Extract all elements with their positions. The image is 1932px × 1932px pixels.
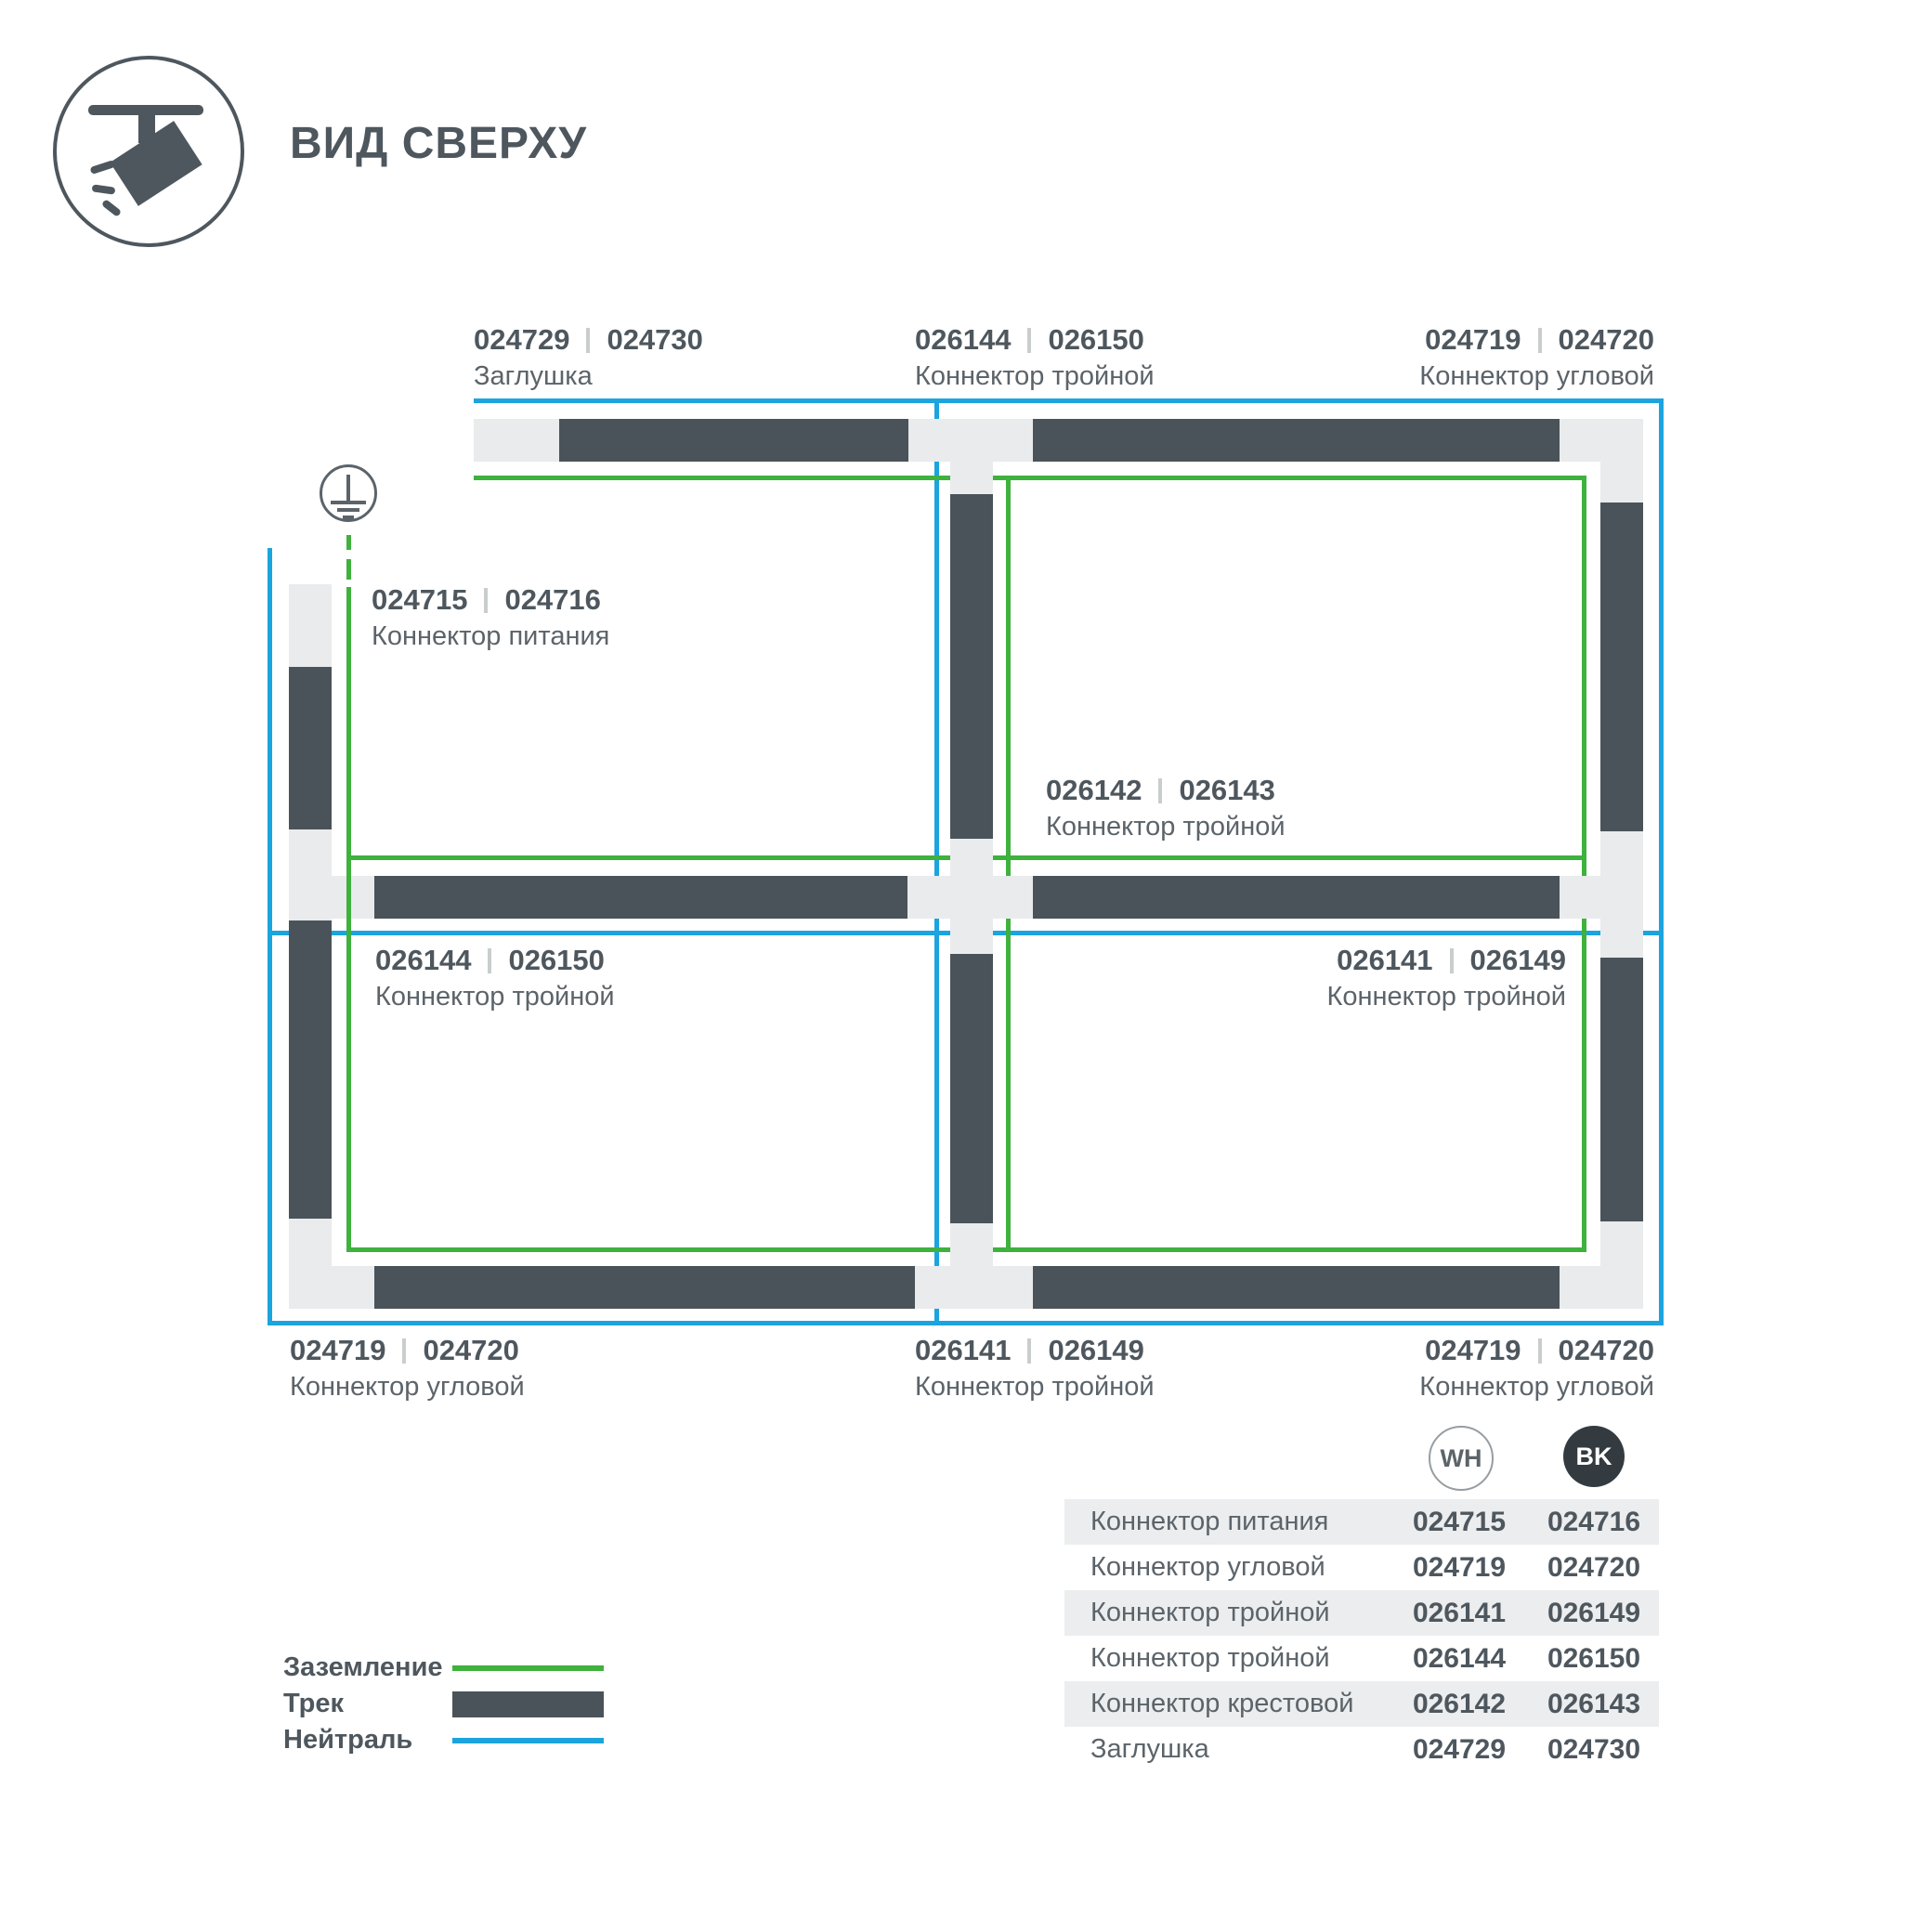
part-number-bk: 026143 xyxy=(1529,1689,1659,1720)
part-number-wh: 024729 xyxy=(1390,1734,1529,1766)
separator xyxy=(1450,948,1454,973)
callout-corner-bottom-left: 024719024720 Коннектор угловой xyxy=(290,1336,525,1401)
neutral-line-bottom xyxy=(268,1321,1664,1325)
neutral-line-right xyxy=(1659,398,1664,1325)
part-number-bk: 024720 xyxy=(1529,1552,1659,1584)
legend-item-track: Трек xyxy=(283,1686,604,1722)
ground-line-swatch xyxy=(452,1665,604,1671)
part-name: Коннектор питания xyxy=(1064,1507,1390,1537)
separator xyxy=(1158,778,1162,803)
legend-item-neutral: Нейтраль xyxy=(283,1722,604,1758)
track-segment xyxy=(1600,503,1643,831)
ground-feed-line xyxy=(346,587,351,1252)
part-number-bk: 024730 xyxy=(1529,1734,1659,1766)
callout-corner-bottom-right: 024719024720 Коннектор угловой xyxy=(1419,1336,1654,1401)
part-number-wh: 026141 xyxy=(1390,1598,1529,1629)
table-row: Коннектор крестовой 026142 026143 xyxy=(1064,1681,1659,1727)
separator xyxy=(484,588,488,613)
callout-endcap-top: 024729024730 Заглушка xyxy=(474,325,703,390)
part-name: Коннектор крестовой xyxy=(1064,1689,1390,1719)
part-name: Заглушка xyxy=(1064,1734,1390,1765)
table-row: Коннектор питания 024715 024716 xyxy=(1064,1499,1659,1545)
legend: Заземление Трек Нейтраль xyxy=(283,1650,604,1758)
legend-item-ground: Заземление xyxy=(283,1650,604,1686)
white-variant-badge: WH xyxy=(1429,1426,1494,1491)
callout-tee-top: 026144026150 Коннектор тройной xyxy=(915,325,1155,390)
track-segment xyxy=(1033,876,1560,919)
black-variant-badge: BK xyxy=(1563,1426,1625,1487)
track-segment xyxy=(1033,1266,1560,1309)
table-row: Заглушка 024729 024730 xyxy=(1064,1727,1659,1772)
neutral-line-swatch xyxy=(452,1738,604,1743)
callout-power-connector: 024715024716 Коннектор питания xyxy=(372,585,609,650)
ground-feed-dash xyxy=(346,559,351,580)
separator xyxy=(1027,1338,1031,1364)
ground-feed-dash xyxy=(346,535,351,550)
ground-line-middle-vertical xyxy=(1006,476,1011,1252)
page-title: ВИД СВЕРХУ xyxy=(290,118,587,169)
track-segment xyxy=(950,494,993,839)
track-light-icon xyxy=(53,56,244,247)
track-segment xyxy=(1600,958,1643,1221)
track-segment xyxy=(289,667,332,829)
callout-corner-top-right: 024719024720 Коннектор угловой xyxy=(1419,325,1654,390)
track-segment xyxy=(559,419,908,462)
separator xyxy=(1538,1338,1542,1364)
track-segment xyxy=(950,954,993,1223)
part-number-wh: 024715 xyxy=(1390,1507,1529,1538)
part-number-bk: 026149 xyxy=(1529,1598,1659,1629)
icon-light-ray xyxy=(101,199,122,217)
separator xyxy=(586,328,590,353)
callout-tee-middle-left: 026144026150 Коннектор тройной xyxy=(375,946,615,1011)
track-segment xyxy=(289,920,332,1219)
ground-line-right xyxy=(1582,476,1586,1252)
separator xyxy=(1027,328,1031,353)
part-name: Коннектор тройной xyxy=(1064,1598,1390,1628)
track-segment xyxy=(1033,419,1560,462)
part-number-wh: 026142 xyxy=(1390,1689,1529,1720)
icon-light-ray xyxy=(92,184,116,194)
track-segment xyxy=(374,876,907,919)
parts-table: Коннектор питания 024715 024716 Коннекто… xyxy=(1064,1499,1659,1772)
callout-cross-center: 026142026143 Коннектор тройной xyxy=(1046,776,1286,841)
ground-line-top xyxy=(474,476,1586,480)
part-name: Коннектор тройной xyxy=(1064,1643,1390,1674)
separator xyxy=(1538,328,1542,353)
icon-spotlight-body xyxy=(110,121,202,206)
table-row: Коннектор тройной 026141 026149 xyxy=(1064,1590,1659,1636)
neutral-line-top xyxy=(474,398,1664,403)
separator xyxy=(488,948,491,973)
part-number-wh: 024719 xyxy=(1390,1552,1529,1584)
callout-tee-middle-right: 026141026149 Коннектор тройной xyxy=(1326,946,1566,1011)
table-row: Коннектор тройной 026144 026150 xyxy=(1064,1636,1659,1681)
part-name: Коннектор угловой xyxy=(1064,1552,1390,1583)
neutral-line-left xyxy=(268,548,272,1325)
part-number-bk: 026150 xyxy=(1529,1643,1659,1675)
part-number-bk: 024716 xyxy=(1529,1507,1659,1538)
track-bar-swatch xyxy=(452,1691,604,1717)
callout-tee-bottom: 026141026149 Коннектор тройной xyxy=(915,1336,1155,1401)
page: ВИД СВЕРХУ 024729024730 Заглушка 0261440… xyxy=(0,0,1932,1932)
table-row: Коннектор угловой 024719 024720 xyxy=(1064,1545,1659,1590)
separator xyxy=(402,1338,406,1364)
neutral-line-middle-vertical xyxy=(934,398,939,1325)
part-number-wh: 026144 xyxy=(1390,1643,1529,1675)
icon-light-ray xyxy=(89,160,115,175)
earth-ground-symbol xyxy=(320,464,377,522)
track-segment xyxy=(374,1266,915,1309)
